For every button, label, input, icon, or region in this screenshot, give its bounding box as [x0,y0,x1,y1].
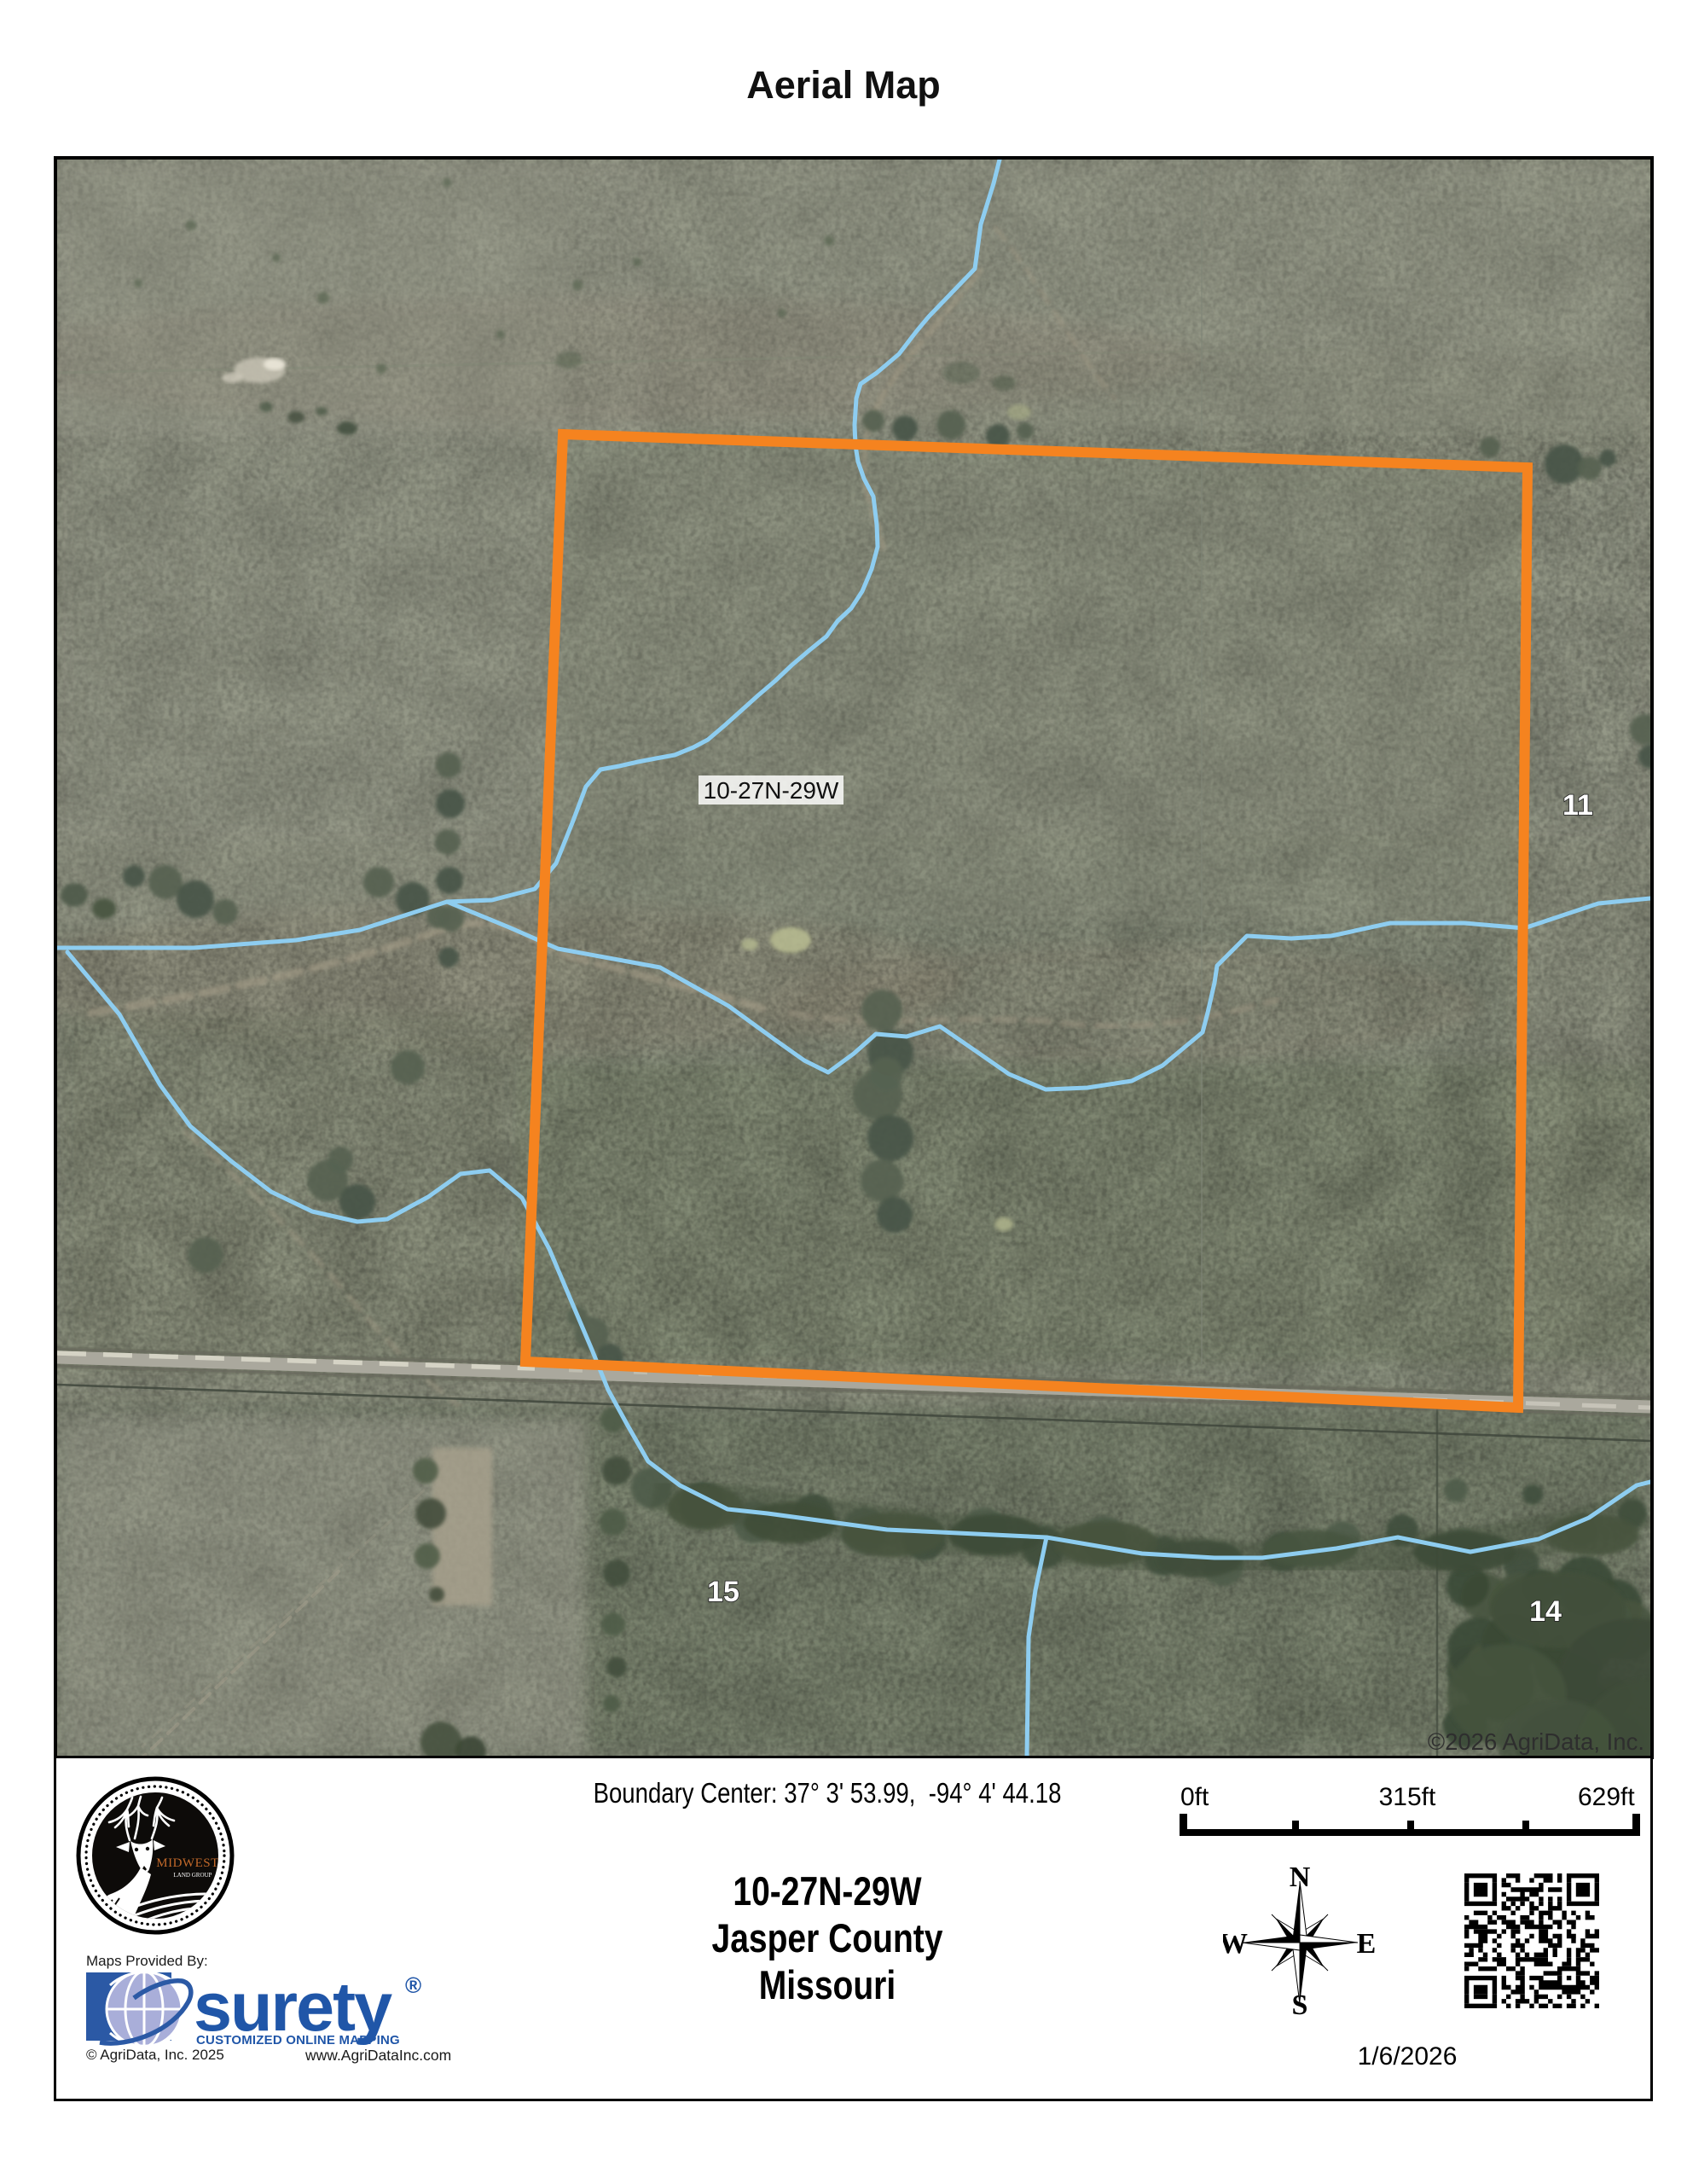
svg-text:W: W [1223,1928,1248,1960]
svg-text:LAND GROUP: LAND GROUP [174,1872,212,1879]
svg-text:®: ® [405,1972,421,1998]
svg-text:CUSTOMIZED ONLINE MAPPING: CUSTOMIZED ONLINE MAPPING [196,2033,400,2047]
svg-text:MIDWEST: MIDWEST [156,1856,219,1870]
svg-text:11: 11 [1562,789,1593,822]
svg-text:10-27N-29W: 10-27N-29W [704,777,839,804]
svg-text:15: 15 [707,1576,739,1608]
svg-text:14: 14 [1529,1595,1562,1628]
svg-text:©2026 AgriData, Inc.: ©2026 AgriData, Inc. [1428,1728,1644,1755]
svg-text:E: E [1357,1928,1377,1960]
